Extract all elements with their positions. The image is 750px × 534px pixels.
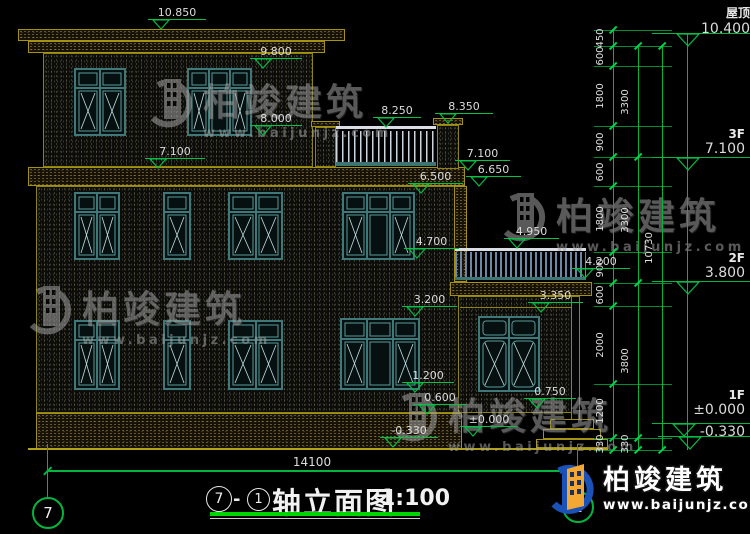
elevation-marker-value: 8.350 [435, 100, 493, 113]
dim-chain-line [613, 30, 614, 450]
elevation-marker-triangle [408, 248, 426, 259]
facade-window [74, 68, 126, 136]
dim-chain-label: 1800 [595, 71, 607, 121]
floor-marker-2f-triangle [676, 281, 700, 295]
watermark-icon [143, 72, 195, 132]
elevation-marker-value: 0.750 [524, 385, 576, 398]
elevation-marker-value: 6.500 [408, 170, 463, 183]
floor-marker-1f: 1F ±0.000 [640, 388, 745, 418]
axis-line-left [47, 449, 48, 497]
elevation-marker-triangle [384, 437, 402, 448]
dim-chain-line [638, 46, 639, 450]
logo-brand: 柏竣建筑 [603, 458, 750, 497]
floor-marker-roof-triangle [676, 33, 700, 47]
floor-marker-1f-triangle-minus [678, 436, 702, 450]
floor-marker-3f-line [652, 157, 750, 158]
elevation-marker-value: 9.800 [250, 45, 302, 58]
logo-url: www.baijunjz.com [603, 497, 750, 513]
elevation-marker-triangle [254, 58, 272, 69]
elevation-marker-triangle [532, 302, 550, 313]
elevation-marker-value: 3.200 [402, 293, 457, 306]
elevation-marker-triangle [412, 183, 430, 194]
elevation-marker-value: 4.200 [572, 255, 630, 268]
title-underline-thin [210, 518, 420, 519]
facade-window [478, 316, 540, 392]
elevation-marker-value: 8.250 [373, 104, 421, 117]
dim-chain-label: 1800 [595, 194, 607, 244]
elevation-marker-triangle [508, 238, 526, 249]
elevation-marker-triangle [377, 117, 395, 128]
elevation-marker-triangle [528, 398, 546, 409]
elevation-marker-value: 6.650 [466, 163, 521, 176]
bottom-dim-label: 14100 [282, 455, 342, 469]
elevation-marker-triangle [439, 113, 457, 124]
elevation-marker-value: 4.950 [504, 225, 559, 238]
floor-marker-3f: 3F 7.100 [640, 127, 745, 157]
elevation-marker-value: 3.350 [528, 289, 583, 302]
annex-lintel-line [460, 307, 577, 308]
watermark-url: www.baijunjz.com [82, 333, 271, 348]
title-axis-circle-left: 7 [206, 486, 232, 512]
elevation-marker-triangle [464, 426, 482, 437]
elevation-marker-value: 1.200 [402, 369, 454, 382]
logo-icon [543, 458, 597, 518]
floor-marker-2f: 2F 3.800 [640, 251, 745, 281]
floor-marker-2f-line [652, 281, 750, 282]
facade-window [163, 192, 191, 260]
elevation-marker-value: 4.700 [404, 235, 459, 248]
elevation-marker-triangle [254, 125, 272, 136]
elevation-marker-triangle [149, 158, 167, 169]
floor-marker-3f-triangle [676, 157, 700, 171]
elevation-marker-triangle [418, 404, 436, 415]
elevation-marker-triangle [406, 306, 424, 317]
elevation-marker-value: ±0.000 [460, 413, 518, 426]
title-axis-circle-right: 1 [247, 488, 270, 511]
floor-marker-roof-line [652, 33, 750, 34]
elevation-marker-value: -0.330 [380, 424, 438, 437]
watermark: 柏竣建筑 www.baijunjz.com [22, 279, 271, 348]
facade-window [342, 192, 415, 260]
dim-chain-label: 2000 [595, 320, 607, 370]
bottom-dim-line [47, 470, 578, 472]
dim-extension-line [594, 384, 672, 385]
dim-chain-label: 600 [595, 147, 607, 197]
elevation-marker-value: 10.850 [148, 6, 206, 19]
watermark-icon [22, 279, 74, 339]
drawing-scale: 1:100 [380, 486, 450, 511]
dim-chain-label: 3300 [620, 195, 632, 245]
dim-chain-label: 600 [595, 270, 607, 320]
roof-slab-upper [18, 29, 345, 41]
elevation-marker-triangle [470, 176, 488, 187]
facade-window [228, 192, 283, 260]
watermark-url: www.baijunjz.com [203, 126, 392, 141]
floor-marker-1f-triangle-zero [672, 423, 696, 437]
title-dash: - [233, 489, 240, 510]
elevation-drawing-canvas: 柏竣建筑 www.baijunjz.com 柏竣建筑 www.baijunjz.… [0, 0, 750, 534]
dim-chain-label: 3300 [620, 77, 632, 127]
logo: 柏竣建筑 www.baijunjz.com [543, 458, 750, 518]
elevation-marker-triangle [576, 268, 594, 279]
title-underline [210, 512, 420, 516]
watermark-brand: 柏竣建筑 [82, 279, 271, 333]
elevation-marker-triangle [152, 19, 170, 30]
axis-bubble-left: 7 [32, 497, 64, 529]
elevation-marker-value: 7.100 [455, 147, 510, 160]
elevation-marker-value: 8.000 [250, 112, 302, 125]
dim-chain-label: 3800 [620, 336, 632, 386]
elevation-marker-value: 0.600 [414, 391, 466, 404]
elevation-marker-value: 7.100 [145, 145, 205, 158]
slab-band-2f-roof [28, 167, 465, 186]
facade-window [74, 192, 120, 260]
